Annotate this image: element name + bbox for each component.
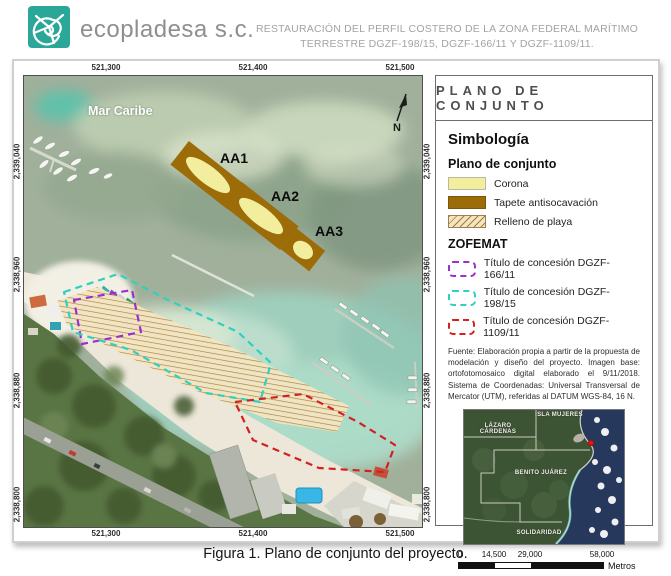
document-title-line1: RESTAURACIÓN DEL PERFIL COSTERO DE LA ZO…	[237, 22, 657, 37]
y-tick-left-3: 2,338,880	[13, 361, 22, 421]
legend-item-corona: Corona	[448, 177, 640, 190]
dgzf-198-swatch	[448, 290, 476, 306]
relleno-swatch	[448, 215, 486, 228]
legend-item-dgzf-1109: Título de concesión DGZF-1109/11	[448, 315, 640, 339]
dgzf-166-label: Título de concesión DGZF-166/11	[484, 257, 640, 281]
sea-label: Mar Caribe	[88, 104, 153, 118]
scale-bar-row: Metros	[458, 561, 636, 571]
main-map: Mar Caribe AA1 AA2 AA3 N	[23, 75, 423, 528]
corona-swatch	[448, 177, 486, 190]
company-logo	[28, 6, 70, 48]
y-tick-left-4: 2,338,800	[13, 475, 22, 535]
legend-item-dgzf-166: Título de concesión DGZF-166/11	[448, 257, 640, 281]
inset-label-solidaridad: SOLIDARIDAD	[506, 530, 572, 536]
source-note: Fuente: Elaboración propia a partir de l…	[448, 346, 640, 402]
area-label-aa3: AA3	[315, 223, 343, 239]
document-title: RESTAURACIÓN DEL PERFIL COSTERO DE LA ZO…	[237, 22, 657, 51]
scale-unit-label: Metros	[608, 561, 636, 571]
panel-title-box: PLANO DE CONJUNTO	[436, 76, 652, 121]
y-tick-left-1: 2,339,040	[13, 132, 22, 192]
figure-caption: Figura 1. Plano de conjunto del proyecto…	[0, 546, 671, 562]
map-satellite-graphic	[24, 76, 422, 527]
x-tick-bottom-1: 521,300	[76, 529, 136, 538]
scale-segment-1	[459, 563, 495, 568]
y-tick-right-4: 2,338,800	[423, 475, 432, 535]
dgzf-1109-label: Título de concesión DGZF-1109/11	[483, 315, 640, 339]
tapete-label: Tapete antisocavación	[494, 197, 598, 209]
inset-label-isla-mujeres: ISLA MUJERES	[528, 412, 590, 418]
symbology-heading: Simbología	[448, 131, 640, 148]
legend-item-dgzf-198: Título de concesión DGZF-198/15	[448, 286, 640, 310]
panel-title: PLANO DE CONJUNTO	[436, 83, 652, 113]
shell-spiral-icon	[28, 6, 70, 48]
inset-label-lazaro-cardenas: LÁZARO CÁRDENAS	[466, 423, 530, 435]
north-arrow-label: N	[393, 122, 401, 134]
dgzf-166-swatch	[448, 261, 476, 277]
scale-segment-2	[495, 563, 531, 568]
dgzf-1109-swatch	[448, 319, 475, 335]
x-tick-bottom-3: 521,500	[370, 529, 430, 538]
group-plano-heading: Plano de conjunto	[448, 157, 640, 171]
x-tick-top-3: 521,500	[370, 63, 430, 72]
project-location-dot	[588, 440, 594, 446]
corona-label: Corona	[494, 178, 528, 190]
scale-bar-segments	[458, 562, 604, 569]
scale-segment-3	[531, 563, 603, 568]
x-tick-bottom-2: 521,400	[223, 529, 283, 538]
group-zofemat-heading: ZOFEMAT	[448, 237, 640, 251]
x-tick-top-1: 521,300	[76, 63, 136, 72]
legend-item-tapete: Tapete antisocavación	[448, 196, 640, 209]
inset-label-benito-juarez: BENITO JUÁREZ	[508, 470, 574, 476]
legend-item-relleno: Relleno de playa	[448, 215, 640, 228]
x-tick-top-2: 521,400	[223, 63, 283, 72]
y-tick-right-2: 2,338,960	[423, 245, 432, 305]
legend-body: Simbología Plano de conjunto Corona Tape…	[436, 121, 652, 576]
y-tick-right-1: 2,339,040	[423, 132, 432, 192]
y-tick-left-2: 2,338,960	[13, 245, 22, 305]
inset-locator-map: ISLA MUJERES LÁZARO CÁRDENAS BENITO JUÁR…	[463, 409, 625, 545]
relleno-label: Relleno de playa	[494, 216, 572, 228]
y-tick-right-3: 2,338,880	[423, 361, 432, 421]
area-label-aa2: AA2	[271, 188, 299, 204]
document-title-line2: TERRESTRE DGZF-198/15, DGZF-166/11 Y DGZ…	[237, 37, 657, 52]
dgzf-198-label: Título de concesión DGZF-198/15	[484, 286, 640, 310]
company-name: ecopladesa s.c.	[80, 16, 254, 44]
legend-panel: PLANO DE CONJUNTO Simbología Plano de co…	[435, 75, 653, 526]
figure-sheet: 521,300 521,400 521,500 521,300 521,400 …	[12, 59, 660, 543]
area-label-aa1: AA1	[220, 150, 248, 166]
tapete-swatch	[448, 196, 486, 209]
